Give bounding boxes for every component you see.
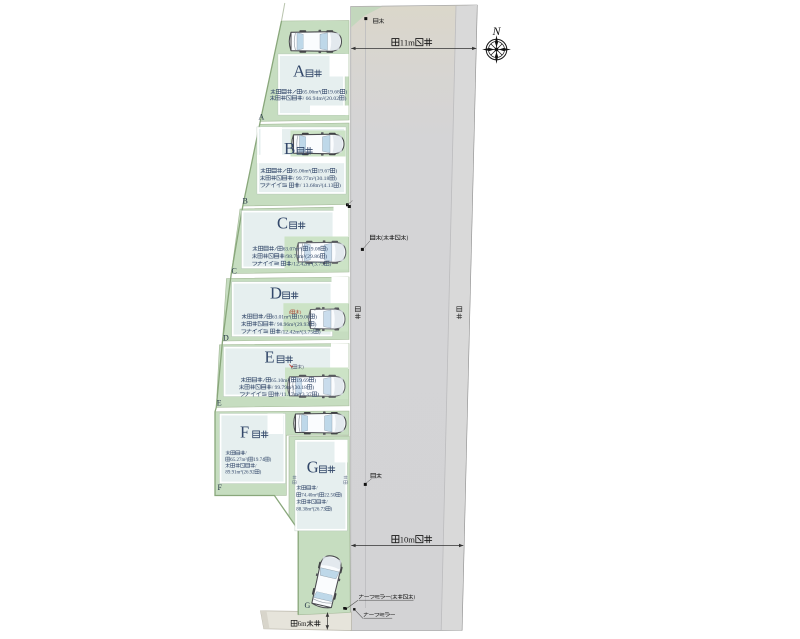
svg-text:74.40m²(: 74.40m²( — [301, 493, 319, 499]
svg-text:): ) — [345, 89, 347, 96]
svg-text:A: A — [259, 113, 265, 122]
svg-text:10m: 10m — [400, 535, 415, 545]
svg-text:): ) — [317, 391, 319, 398]
svg-text:6m: 6m — [298, 620, 307, 628]
svg-text:): ) — [330, 261, 332, 268]
svg-text:C: C — [232, 267, 237, 276]
svg-text:B: B — [243, 197, 248, 206]
svg-text:D: D — [270, 284, 282, 303]
svg-text:): ) — [345, 95, 347, 102]
svg-text:19.74: 19.74 — [253, 458, 265, 463]
svg-text:(: ( — [391, 594, 393, 601]
svg-text:65.06m²(: 65.06m²( — [292, 168, 312, 175]
svg-text:19.69: 19.69 — [296, 378, 309, 384]
svg-text:19.08: 19.08 — [308, 247, 321, 253]
svg-text:89.91m²(26.92: 89.91m²(26.92 — [225, 470, 255, 476]
svg-text:): ) — [315, 321, 317, 328]
svg-text:/12.42m²(3.75: /12.42m²(3.75 — [292, 261, 325, 268]
svg-text:11m: 11m — [400, 38, 415, 48]
svg-text:/ 99.79m²(30.18: / 99.79m²(30.18 — [272, 384, 307, 391]
svg-text:F: F — [218, 483, 223, 492]
svg-text:): ) — [413, 594, 415, 601]
svg-text:): ) — [325, 253, 327, 260]
svg-text:E: E — [265, 348, 275, 367]
svg-text:G: G — [305, 601, 311, 610]
svg-text:G: G — [307, 458, 319, 477]
svg-text:E: E — [217, 399, 222, 408]
svg-text:C: C — [277, 214, 288, 233]
svg-text:/ 66.94m²(20.02: / 66.94m²(20.02 — [303, 95, 340, 102]
svg-text:/ 13.68m²(4.13: / 13.68m²(4.13 — [300, 182, 334, 189]
svg-text:/ 98.96m²(29.93: / 98.96m²(29.93 — [274, 321, 309, 328]
svg-text:): ) — [314, 377, 316, 384]
svg-text:): ) — [335, 175, 337, 182]
svg-text:N: N — [492, 24, 502, 38]
svg-text:/11.17m²(3.37: /11.17m²(3.37 — [279, 391, 312, 398]
svg-text:F: F — [240, 423, 249, 442]
svg-text:/12.42m²(3.75: /12.42m²(3.75 — [281, 328, 314, 335]
svg-text:/ 99.77m²(30.18: / 99.77m²(30.18 — [293, 175, 330, 182]
svg-text:): ) — [312, 384, 314, 391]
svg-text:): ) — [319, 328, 321, 335]
svg-text:): ) — [326, 246, 328, 253]
svg-text:): ) — [339, 182, 341, 189]
svg-text:65.06m²(: 65.06m²( — [302, 89, 322, 96]
svg-text:63.07m²(: 63.07m²( — [283, 246, 303, 253]
svg-text:88.38m²(26.73: 88.38m²(26.73 — [296, 507, 326, 513]
svg-text:A: A — [293, 62, 306, 81]
svg-text:65.27m²(: 65.27m²( — [230, 457, 248, 463]
svg-text:19.67: 19.67 — [317, 169, 330, 175]
svg-text:19.68: 19.68 — [327, 90, 340, 96]
svg-text:D: D — [223, 334, 229, 343]
svg-text:(: ( — [381, 235, 383, 242]
svg-text:65.10m²(: 65.10m²( — [271, 377, 291, 384]
svg-text:): ) — [315, 313, 317, 320]
svg-text:): ) — [406, 235, 408, 242]
svg-text:): ) — [335, 168, 337, 175]
svg-text:19.06: 19.06 — [297, 314, 310, 320]
svg-text:B: B — [284, 139, 295, 158]
svg-text:/98.74m²(29.86: /98.74m²(29.86 — [285, 253, 320, 260]
svg-text:22.50: 22.50 — [324, 494, 336, 499]
